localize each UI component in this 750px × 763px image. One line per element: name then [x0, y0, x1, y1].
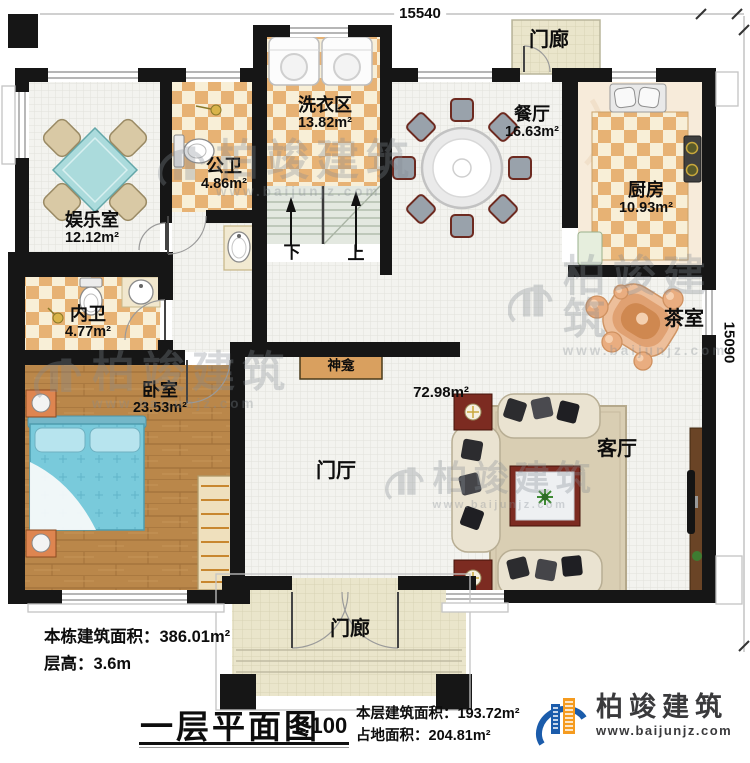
stair-down-label: 下 — [284, 243, 301, 262]
shrine-label: 神龛 — [328, 358, 355, 373]
title-underline-thin — [139, 747, 349, 748]
building-notes: 本栋建筑面积：386.01m² 层高：3.6m — [44, 624, 230, 678]
watermark-logo-icon — [158, 142, 208, 200]
area-stats: 本层建筑面积：193.72m² 占地面积：204.81m² — [356, 703, 520, 748]
room-label-entertainment: 娱乐室 12.12m² — [65, 210, 119, 246]
stair-up-label: 上 — [348, 244, 365, 263]
room-label-porch-top: 门廊 — [529, 29, 569, 51]
watermark-logo-icon — [385, 464, 426, 512]
plan-scale: 1:100 — [291, 713, 347, 739]
room-label-dining: 餐厅 16.63m² — [505, 104, 559, 140]
footprint-line: 占地面积：204.81m² — [356, 725, 520, 747]
room-label-kitchen: 厨房 10.93m² — [619, 180, 673, 216]
floor-plan-page: 15540 15090 娱乐室 12.12m² 公卫 4.86m² 洗衣区 13… — [0, 0, 750, 763]
watermark-logo-icon — [508, 279, 555, 337]
watermark: 柏竣建筑 www.baijunjz.com — [158, 140, 416, 202]
dimension-top: 15540 — [394, 6, 446, 23]
room-label-laundry: 洗衣区 13.82m² — [298, 95, 352, 131]
room-label-foyer: 门厅 — [316, 460, 356, 482]
entertainment-table-icon — [41, 117, 149, 223]
watermark-logo-icon — [34, 354, 84, 412]
bed-icon — [28, 416, 146, 530]
watermark: 柏竣建筑 www.baijunjz.com — [34, 352, 292, 414]
watermark: 柏竣建筑 www.baijunjz.com — [508, 256, 750, 361]
room-label-private-bath: 内卫 4.77m² — [65, 304, 111, 340]
wardrobe-icon — [198, 476, 232, 590]
floor-area-line: 本层建筑面积：193.72m² — [356, 703, 520, 725]
watermark: 柏竣建筑 www.baijunjz.com — [385, 462, 597, 513]
title-underline — [139, 742, 349, 745]
brand-name: 柏竣建筑 — [596, 692, 732, 723]
total-area-line: 本栋建筑面积：386.01m² — [44, 624, 230, 651]
brand-logo-icon — [534, 692, 590, 756]
corridor-basin-icon — [224, 226, 254, 270]
floor-height-line: 层高：3.6m — [44, 651, 230, 678]
room-label-living: 客厅 — [597, 438, 637, 460]
foyer-area: 72.98m² — [413, 385, 469, 402]
brand-url: www.baijunjz.com — [596, 723, 732, 738]
brand-logo: 柏竣建筑 www.baijunjz.com — [534, 692, 732, 756]
room-label-porch-bottom: 门廊 — [330, 618, 370, 640]
